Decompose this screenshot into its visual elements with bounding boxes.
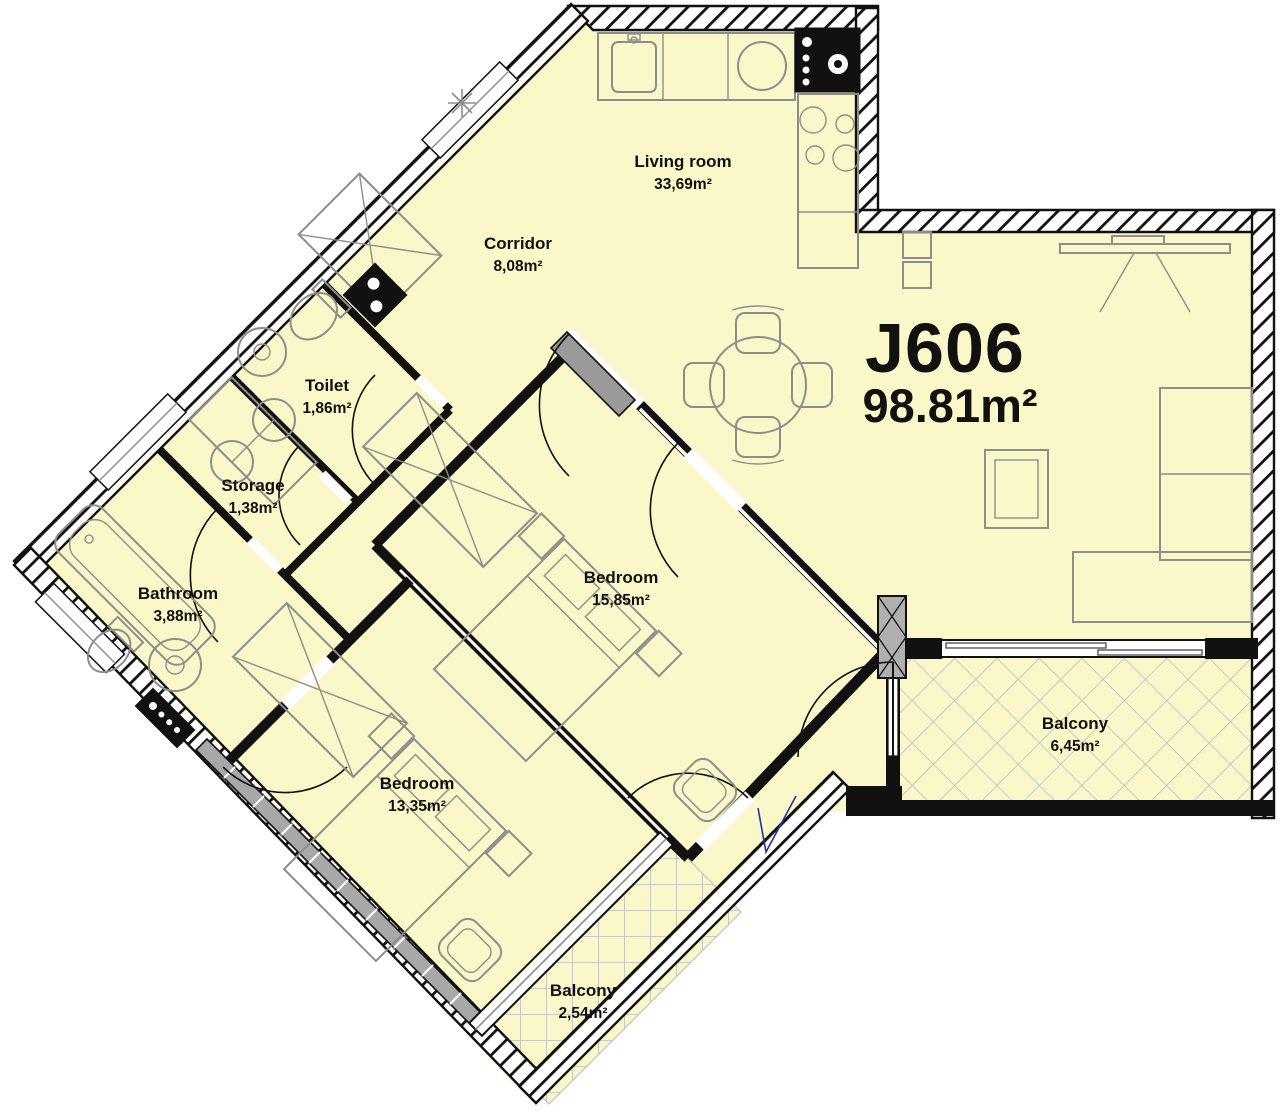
ceiling-lamp-icon [448,89,476,117]
svg-text:Bedroom: Bedroom [584,568,659,587]
svg-text:2,54m²: 2,54m² [558,1005,607,1022]
floor-plan-page: Living room 33,69m² Corridor 8,08m² Toil… [0,0,1280,1115]
svg-text:8,08m²: 8,08m² [493,258,542,275]
svg-text:Living room: Living room [634,152,731,171]
svg-text:6,45m²: 6,45m² [1050,738,1099,755]
svg-text:15,85m²: 15,85m² [592,592,650,609]
svg-text:Toilet: Toilet [305,376,349,395]
svg-text:1,38m²: 1,38m² [228,500,277,517]
svg-text:J606: J606 [865,309,1025,387]
svg-text:Corridor: Corridor [484,234,552,253]
unit-title: J606 98.81m² [862,309,1037,432]
oven-icon [795,28,860,92]
svg-text:13,35m²: 13,35m² [388,798,446,815]
svg-text:Bedroom: Bedroom [380,774,455,793]
svg-text:33,69m²: 33,69m² [654,176,712,193]
svg-text:Storage: Storage [221,476,284,495]
svg-text:Bathroom: Bathroom [138,584,218,603]
svg-text:Balcony: Balcony [550,981,617,1000]
svg-text:Balcony: Balcony [1042,714,1109,733]
svg-text:1,86m²: 1,86m² [302,400,351,417]
floor-plan-drawing: Living room 33,69m² Corridor 8,08m² Toil… [0,0,1280,1115]
svg-text:3,88m²: 3,88m² [153,608,202,625]
svg-text:98.81m²: 98.81m² [862,379,1037,432]
